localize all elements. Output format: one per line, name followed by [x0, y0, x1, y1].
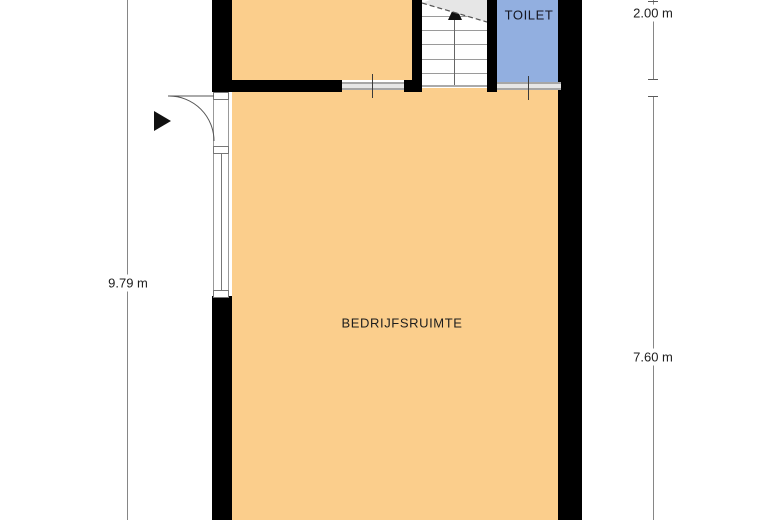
wall-stair-left [412, 0, 422, 92]
wall-room-divider-right [404, 80, 412, 92]
dimension-line-right-bottom [653, 96, 654, 520]
window-glass-line [221, 154, 222, 290]
door-leaf-top-left-room [372, 74, 373, 98]
door-opening-toilet [497, 82, 561, 90]
room-label-bedrijfsruimte: BEDRIJFSRUIMTE [341, 316, 462, 331]
entrance-arrow-icon [154, 111, 171, 131]
dimension-label-right-top: 2.00 m [630, 5, 676, 22]
dimension-tick [648, 79, 658, 80]
dimension-line-left [127, 0, 128, 520]
door-leaf-toilet [528, 76, 529, 100]
stair-threshold [422, 85, 487, 87]
dimension-label-left: 9.79 m [105, 275, 151, 292]
window-jamb [213, 290, 229, 298]
stair-break-line [422, 0, 487, 26]
wall-left-top [212, 0, 232, 92]
wall-left-bottom [212, 296, 232, 520]
floor-plan: BEDRIJFSRUIMTE TOILET 9.79 m 2.00 m 7.60… [0, 0, 780, 520]
dimension-tick [648, 96, 658, 97]
door-opening-top-left-room [342, 82, 404, 90]
wall-right [558, 0, 582, 520]
room-bedrijfsruimte [232, 88, 558, 520]
dimension-label-right-bottom: 7.60 m [630, 349, 676, 366]
room-label-toilet: TOILET [505, 8, 554, 23]
window-left [213, 154, 229, 290]
room-top-left [232, 0, 412, 80]
dimension-tick [648, 1, 658, 2]
wall-stair-right [487, 0, 497, 92]
staircase [422, 0, 487, 87]
